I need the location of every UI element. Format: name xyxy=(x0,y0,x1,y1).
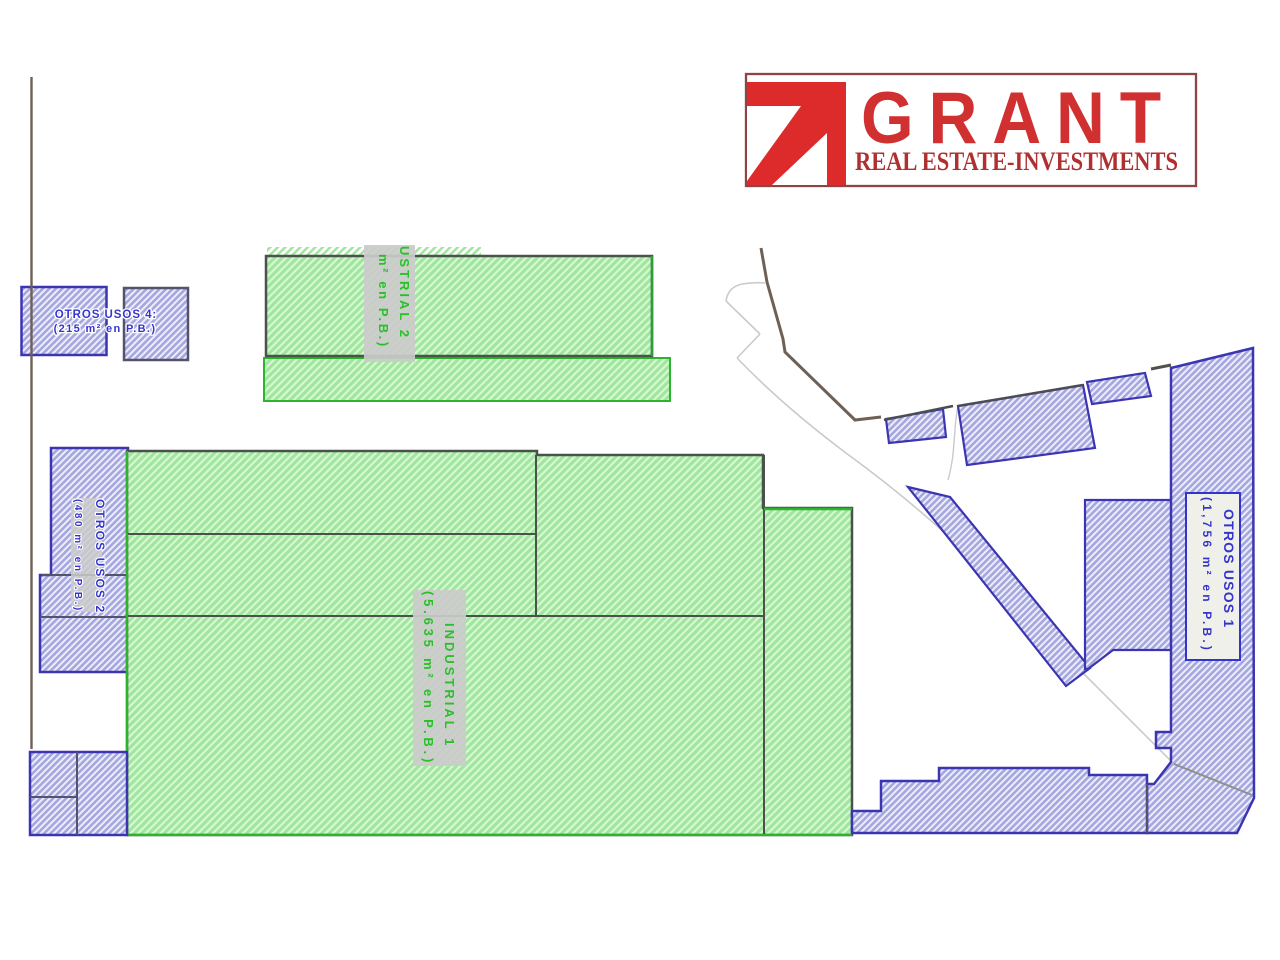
svg-text:(480 m² en P.B.): (480 m² en P.B.) xyxy=(72,499,83,613)
svg-text:(1,756 m² en P.B.): (1,756 m² en P.B.) xyxy=(1200,497,1214,653)
svg-text:m² en P.B.): m² en P.B.) xyxy=(376,254,391,349)
svg-text:INDUSTRIAL 1: INDUSTRIAL 1 xyxy=(442,623,457,748)
svg-text:OTROS USOS 4:: OTROS USOS 4: xyxy=(55,309,157,321)
svg-text:(215 m² en P.B.): (215 m² en P.B.) xyxy=(54,323,157,335)
svg-text:REAL ESTATE-INVESTMENTS: REAL ESTATE-INVESTMENTS xyxy=(855,147,1178,176)
svg-text:USTRIAL 2: USTRIAL 2 xyxy=(397,246,412,340)
svg-text:OTROS USOS 2: OTROS USOS 2 xyxy=(93,499,107,614)
svg-text:OTROS USOS 1: OTROS USOS 1 xyxy=(1221,509,1237,628)
svg-text:(5.635 m² en P.B.): (5.635 m² en P.B.) xyxy=(421,591,436,766)
